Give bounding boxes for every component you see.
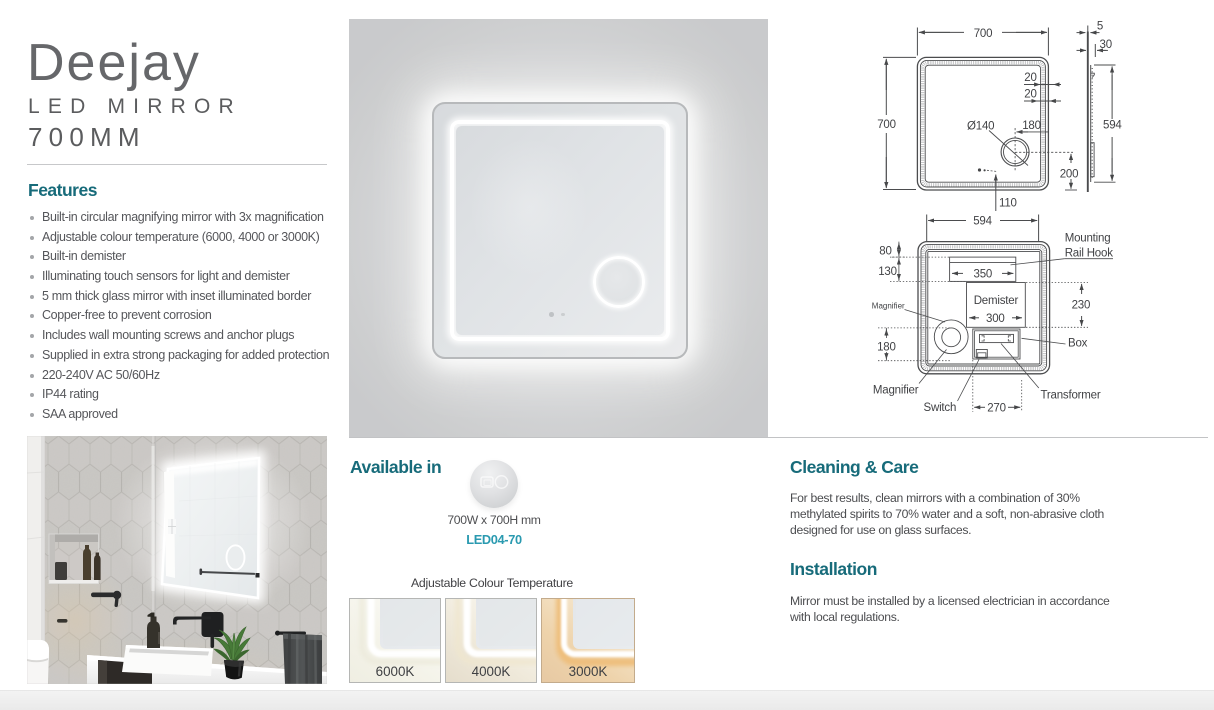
svg-text:Magnifier: Magnifier (872, 302, 905, 311)
svg-text:Box: Box (1068, 338, 1088, 350)
svg-text:20: 20 (1024, 89, 1036, 101)
svg-text:594: 594 (973, 216, 992, 228)
svg-text:Rail Hook: Rail Hook (1065, 248, 1114, 260)
svg-text:200: 200 (1060, 169, 1079, 181)
svg-text:Demister: Demister (974, 295, 1019, 307)
svg-text:180: 180 (877, 342, 896, 354)
svg-text:Magnifier: Magnifier (873, 385, 919, 397)
svg-text:110: 110 (999, 198, 1017, 210)
svg-text:Transformer: Transformer (1041, 390, 1101, 402)
svg-text:Mounting: Mounting (1065, 233, 1111, 245)
svg-text:80: 80 (879, 246, 891, 258)
svg-text:Ø140: Ø140 (967, 121, 994, 133)
svg-text:20: 20 (1024, 72, 1036, 84)
svg-text:230: 230 (1072, 300, 1091, 312)
svg-text:130: 130 (878, 266, 897, 278)
svg-text:30: 30 (1100, 39, 1112, 51)
svg-text:700: 700 (877, 119, 896, 131)
svg-text:594: 594 (1103, 120, 1122, 132)
svg-text:5: 5 (1097, 21, 1103, 33)
svg-text:270: 270 (987, 402, 1006, 414)
svg-text:700: 700 (974, 28, 993, 40)
svg-text:300: 300 (986, 313, 1005, 325)
svg-text:350: 350 (974, 269, 993, 281)
svg-text:Switch: Switch (924, 402, 957, 414)
svg-text:180: 180 (1022, 120, 1041, 132)
